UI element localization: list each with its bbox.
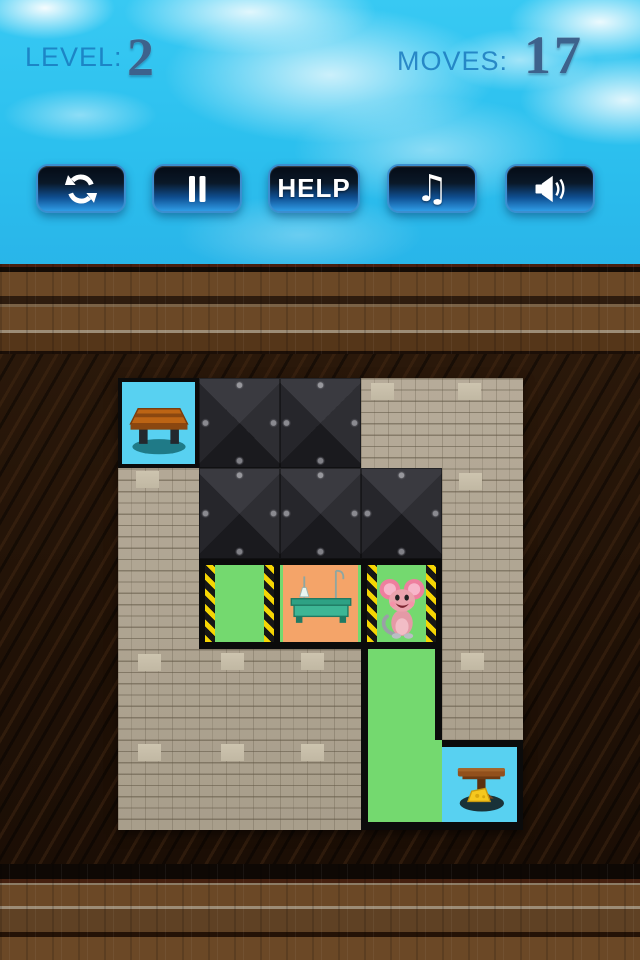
cell-brick <box>118 559 199 649</box>
refresh-icon <box>63 172 99 206</box>
cell-metal <box>361 468 442 558</box>
restart-button[interactable] <box>36 164 126 213</box>
sound-button[interactable] <box>505 164 595 213</box>
music-note-icon: ♫ <box>415 170 448 207</box>
bench-sprite <box>121 386 197 460</box>
music-button[interactable]: ♫ <box>387 164 477 213</box>
cell-metal <box>280 468 361 558</box>
game-board <box>118 378 523 830</box>
cell-brick <box>442 378 523 468</box>
cell-room-orange-table[interactable] <box>280 559 361 649</box>
cell-brick <box>118 468 199 558</box>
level-value: 2 <box>127 26 154 88</box>
cell-brick <box>442 649 523 739</box>
cell-room-green[interactable] <box>199 559 280 649</box>
cell-brick <box>442 559 523 649</box>
cell-metal <box>199 378 280 468</box>
cell-goal-bench[interactable] <box>118 378 199 468</box>
cell-room-green-mouse[interactable] <box>361 559 442 649</box>
cell-brick <box>118 740 199 830</box>
level-label: LEVEL: <box>25 42 123 73</box>
cell-corridor-green[interactable] <box>361 649 442 739</box>
cell-brick <box>199 740 280 830</box>
cell-brick <box>199 649 280 739</box>
help-button-label: HELP <box>277 173 350 204</box>
wood-plank-bottom-band <box>0 864 640 960</box>
sky-background: LEVEL: 2 MOVES: 17 HELP ♫ <box>0 0 640 264</box>
cell-metal <box>199 468 280 558</box>
moves-label: MOVES: <box>397 46 508 77</box>
cell-metal <box>280 378 361 468</box>
pause-icon <box>182 174 212 204</box>
lab-table-sprite <box>282 556 360 634</box>
cell-corridor-green[interactable] <box>361 740 442 830</box>
cell-brick <box>280 740 361 830</box>
pause-button[interactable] <box>152 164 242 213</box>
cell-brick <box>361 378 442 468</box>
cell-brick <box>442 468 523 558</box>
moves-value: 17 <box>524 24 584 86</box>
mouse-sprite <box>374 574 430 640</box>
wood-plank-top-band <box>0 264 640 354</box>
help-button[interactable]: HELP <box>268 164 360 213</box>
cheese-table-sprite <box>443 746 517 818</box>
speaker-icon <box>531 172 569 206</box>
cell-goal-cheese[interactable] <box>442 740 523 830</box>
cell-brick <box>118 649 199 739</box>
cell-brick <box>280 649 361 739</box>
